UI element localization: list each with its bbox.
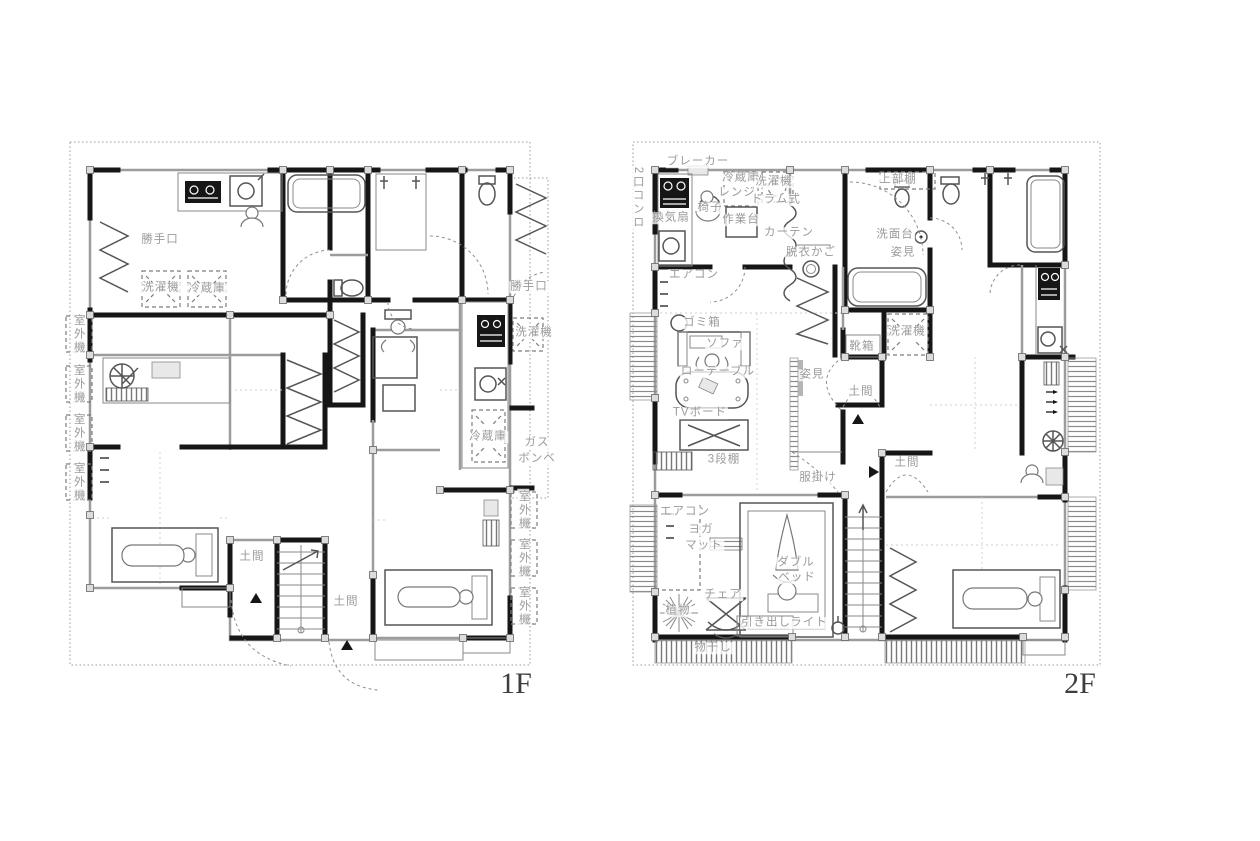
- toilet-icon: [341, 280, 363, 296]
- shower-icon: [1004, 173, 1012, 185]
- equipment-panel: [103, 358, 230, 403]
- stove-icon: [477, 315, 505, 347]
- bed: [953, 570, 1060, 628]
- closet-mark: [890, 548, 916, 632]
- floor-plan-document: 勝手口洗濯機冷蔵庫室外機室外機室外機室外機勝手口洗濯機冷蔵庫ガスボンベ室外機室外…: [0, 0, 1260, 841]
- bathroom-2f: [848, 172, 1064, 306]
- floor-label-1f: 1F: [500, 667, 532, 701]
- kitchenette-2f: [1021, 265, 1067, 485]
- toilet-icon: [895, 189, 909, 207]
- floor-label-2f: 2F: [1064, 667, 1096, 701]
- entrance-arrow: [341, 640, 353, 650]
- trash-can-icon: [671, 315, 687, 331]
- door-arc: [930, 218, 962, 250]
- desk-icon: [1046, 468, 1063, 485]
- shelf-icon: [1044, 362, 1059, 385]
- vent-marks: [100, 458, 109, 482]
- vent-marks: [660, 282, 668, 306]
- bathtub-icon: [848, 268, 926, 306]
- yoga-room-2f: [657, 505, 746, 638]
- living-room-2f: [653, 282, 750, 470]
- entrance-arrow: [869, 466, 879, 478]
- closet-mark: [797, 278, 828, 344]
- double-bed: [737, 503, 844, 637]
- yoga-mat-icon: [710, 538, 742, 550]
- bathtub-icon: [1027, 176, 1064, 252]
- refrigerator-box: [724, 172, 758, 206]
- door-arc: [886, 475, 928, 492]
- entrance-arrow: [852, 414, 864, 424]
- door-arc: [850, 182, 923, 255]
- washer-box: [888, 314, 928, 355]
- bed: [112, 528, 218, 582]
- door-arc: [792, 452, 838, 492]
- mirror-bar: [798, 360, 803, 396]
- closet-mark: [334, 320, 359, 392]
- drying-balcony: [655, 640, 792, 663]
- bed: [385, 570, 492, 625]
- door-arc: [710, 267, 745, 302]
- curtain-icon: [784, 205, 796, 301]
- kitchen-2f: [658, 166, 830, 277]
- work-table-icon: [726, 207, 757, 237]
- laundry-basket-icon: [803, 261, 819, 277]
- closet-mark: [287, 360, 321, 444]
- plant-icon: [660, 594, 698, 632]
- person-figure: [391, 320, 405, 334]
- kitchen-counter: [178, 173, 282, 227]
- person-figure: [1028, 592, 1042, 606]
- floor-plan-1f: [66, 142, 548, 690]
- light-icon: [832, 622, 844, 634]
- entrance-arrow: [250, 593, 262, 603]
- shower-icon: [380, 176, 388, 189]
- door-arc: [430, 236, 488, 294]
- vent-marks: [1046, 392, 1053, 412]
- drum-washer-box: [762, 172, 793, 202]
- shower-icon: [412, 176, 420, 189]
- toilet-icon: [479, 183, 495, 205]
- vent-marks: [666, 514, 674, 538]
- person-figure: [776, 515, 798, 570]
- shoe-box-icon: [846, 335, 880, 357]
- door-arc: [231, 600, 291, 666]
- stairs-2f: [845, 505, 882, 632]
- person-figure: [705, 354, 719, 368]
- person-figure: [246, 207, 258, 219]
- door-arc: [990, 265, 1020, 295]
- refrigerator-box: [472, 410, 505, 462]
- three-tier-shelf-icon: [653, 452, 692, 470]
- person-figure: [459, 590, 473, 604]
- bathtub-icon: [288, 175, 365, 212]
- closet-mark: [100, 222, 128, 292]
- walls-1f: [90, 170, 532, 638]
- drawer-icon: [737, 616, 793, 636]
- floor-plan-2f: [630, 142, 1100, 665]
- dining-table: [373, 310, 417, 411]
- floor-plan-drawing: [0, 0, 1260, 841]
- stairs-1f: [277, 545, 325, 633]
- sink-icon: [230, 176, 262, 206]
- door-arc: [329, 642, 378, 690]
- door-arc: [512, 272, 545, 302]
- door-arc: [286, 250, 330, 296]
- person-figure: [701, 191, 713, 203]
- kitchen-column-1f: [462, 302, 508, 468]
- toilet-icon: [943, 184, 959, 204]
- closet-mark: [516, 184, 546, 254]
